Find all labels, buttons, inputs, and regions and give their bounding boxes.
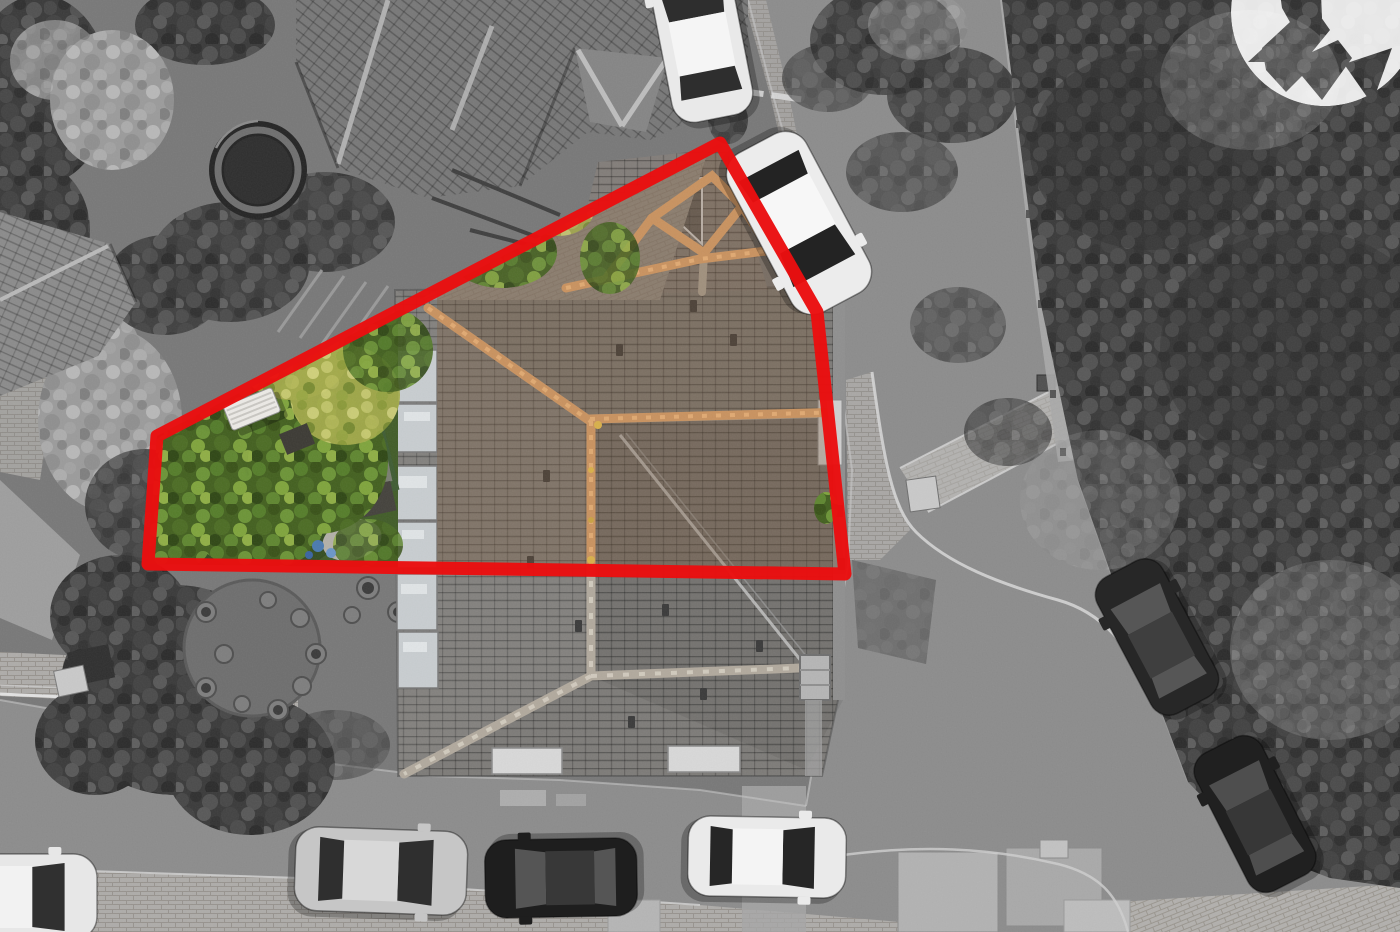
film-grain [0,0,1400,932]
car-bottom-white [680,809,847,906]
car-corner-white [0,847,97,932]
car-bottom-silver [286,819,468,923]
aerial-photo [0,0,1400,932]
car-bottom-black [484,831,645,926]
